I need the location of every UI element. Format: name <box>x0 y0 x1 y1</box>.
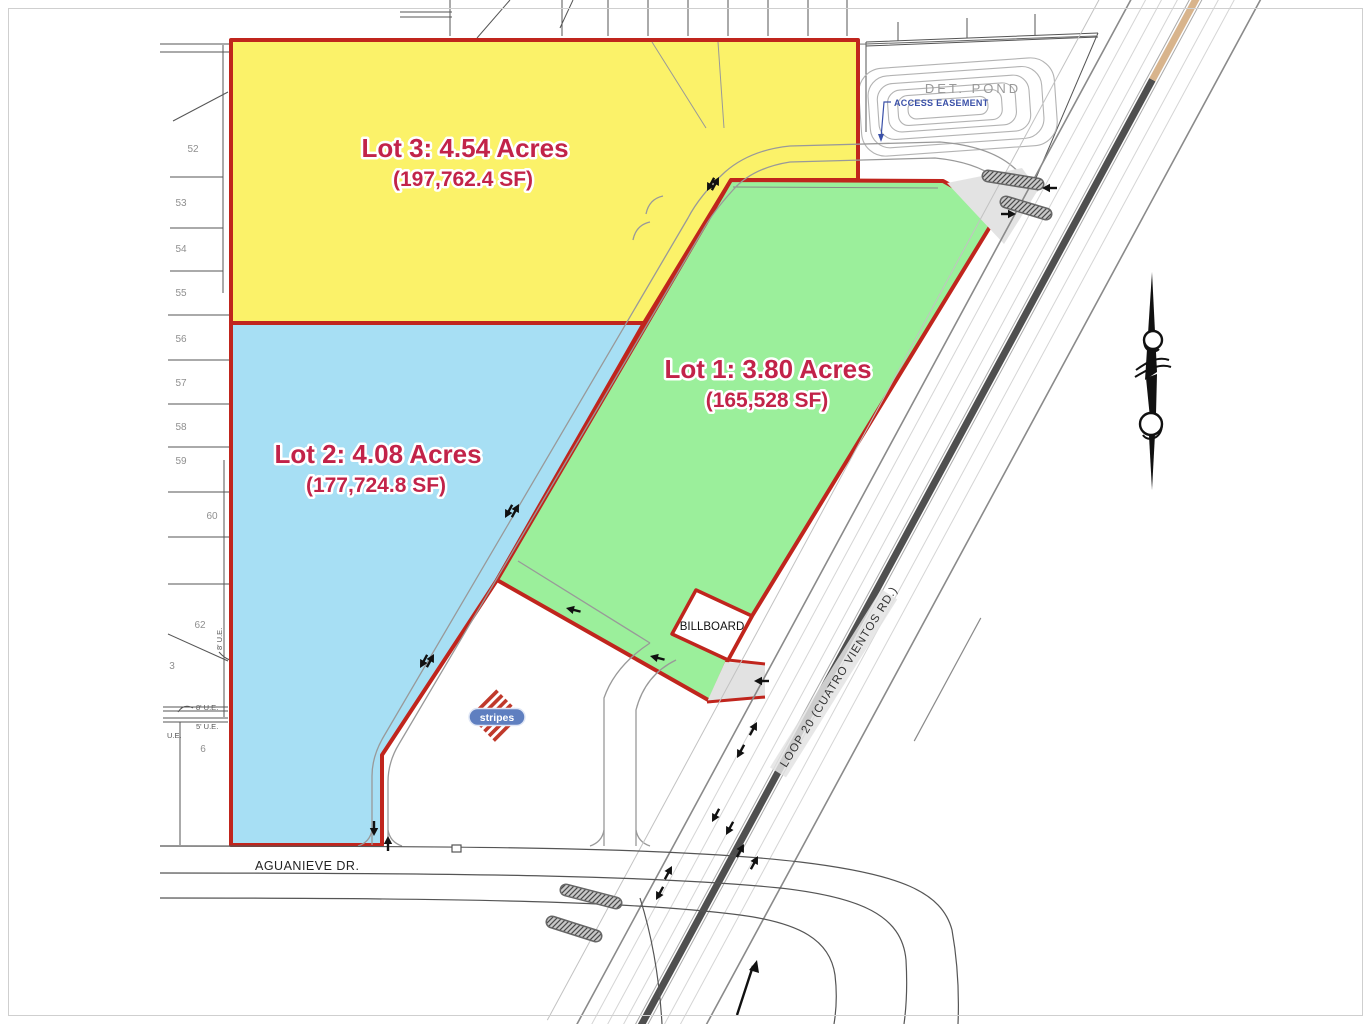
plat-number: 62 <box>194 620 206 631</box>
plat-number: 6 <box>200 744 206 755</box>
plat-number: 52 <box>187 144 199 155</box>
ue-label: 5' U.E. <box>196 722 218 731</box>
stripes-logo-text: stripes <box>480 712 515 724</box>
plat-number: 60 <box>206 511 218 522</box>
aguanieve-label: AGUANIEVE DR. <box>255 859 359 873</box>
lot1-area-size: (165,528 SF) <box>706 389 829 412</box>
det-pond-label: DET. POND <box>925 81 1021 96</box>
plat-number: 54 <box>175 244 187 255</box>
site-plan-map: Lot 3: 4.54 Acres (197,762.4 SF) Lot 2: … <box>0 0 1371 1024</box>
plat-number: 3 <box>169 661 175 672</box>
adjacent-lot-numbers: 52 53 54 55 56 57 58 59 60 62 3 6 <box>169 144 218 755</box>
plat-number: 59 <box>175 456 187 467</box>
north-arrow-icon <box>1135 272 1171 490</box>
loop20-label-group: LOOP 20 (CUATRO VIENTOS RD.) <box>770 582 902 778</box>
lot3-area-size: (197,762.4 SF) <box>393 168 533 191</box>
lot1-name: Lot 1: 3.80 Acres <box>664 354 871 384</box>
turn-arrow <box>737 960 759 1015</box>
plat-number: 53 <box>175 198 187 209</box>
lot3-name: Lot 3: 4.54 Acres <box>361 133 568 163</box>
easement-labels: 8' U.E. 8' U.E. 5' U.E. U.E. <box>167 628 224 740</box>
plat-number: 55 <box>175 288 187 299</box>
plat-number: 58 <box>175 422 187 433</box>
lot2-area-size: (177,724.8 SF) <box>306 474 446 497</box>
stripes-logo: stripes <box>469 689 525 741</box>
ue-label-rotated: 8' U.E. <box>215 628 224 650</box>
site-plan-page: Lot 3: 4.54 Acres (197,762.4 SF) Lot 2: … <box>0 0 1371 1024</box>
access-easement-label: ACCESS EASEMENT <box>894 98 989 108</box>
billboard-label: BILLBOARD <box>680 621 745 633</box>
ue-label: U.E. <box>167 731 182 740</box>
lot2-name: Lot 2: 4.08 Acres <box>274 439 481 469</box>
plat-number: 57 <box>175 378 187 389</box>
loop20-label: LOOP 20 (CUATRO VIENTOS RD.) <box>778 584 900 769</box>
ue-label: 8' U.E. <box>196 703 218 712</box>
plat-number: 56 <box>175 334 187 345</box>
